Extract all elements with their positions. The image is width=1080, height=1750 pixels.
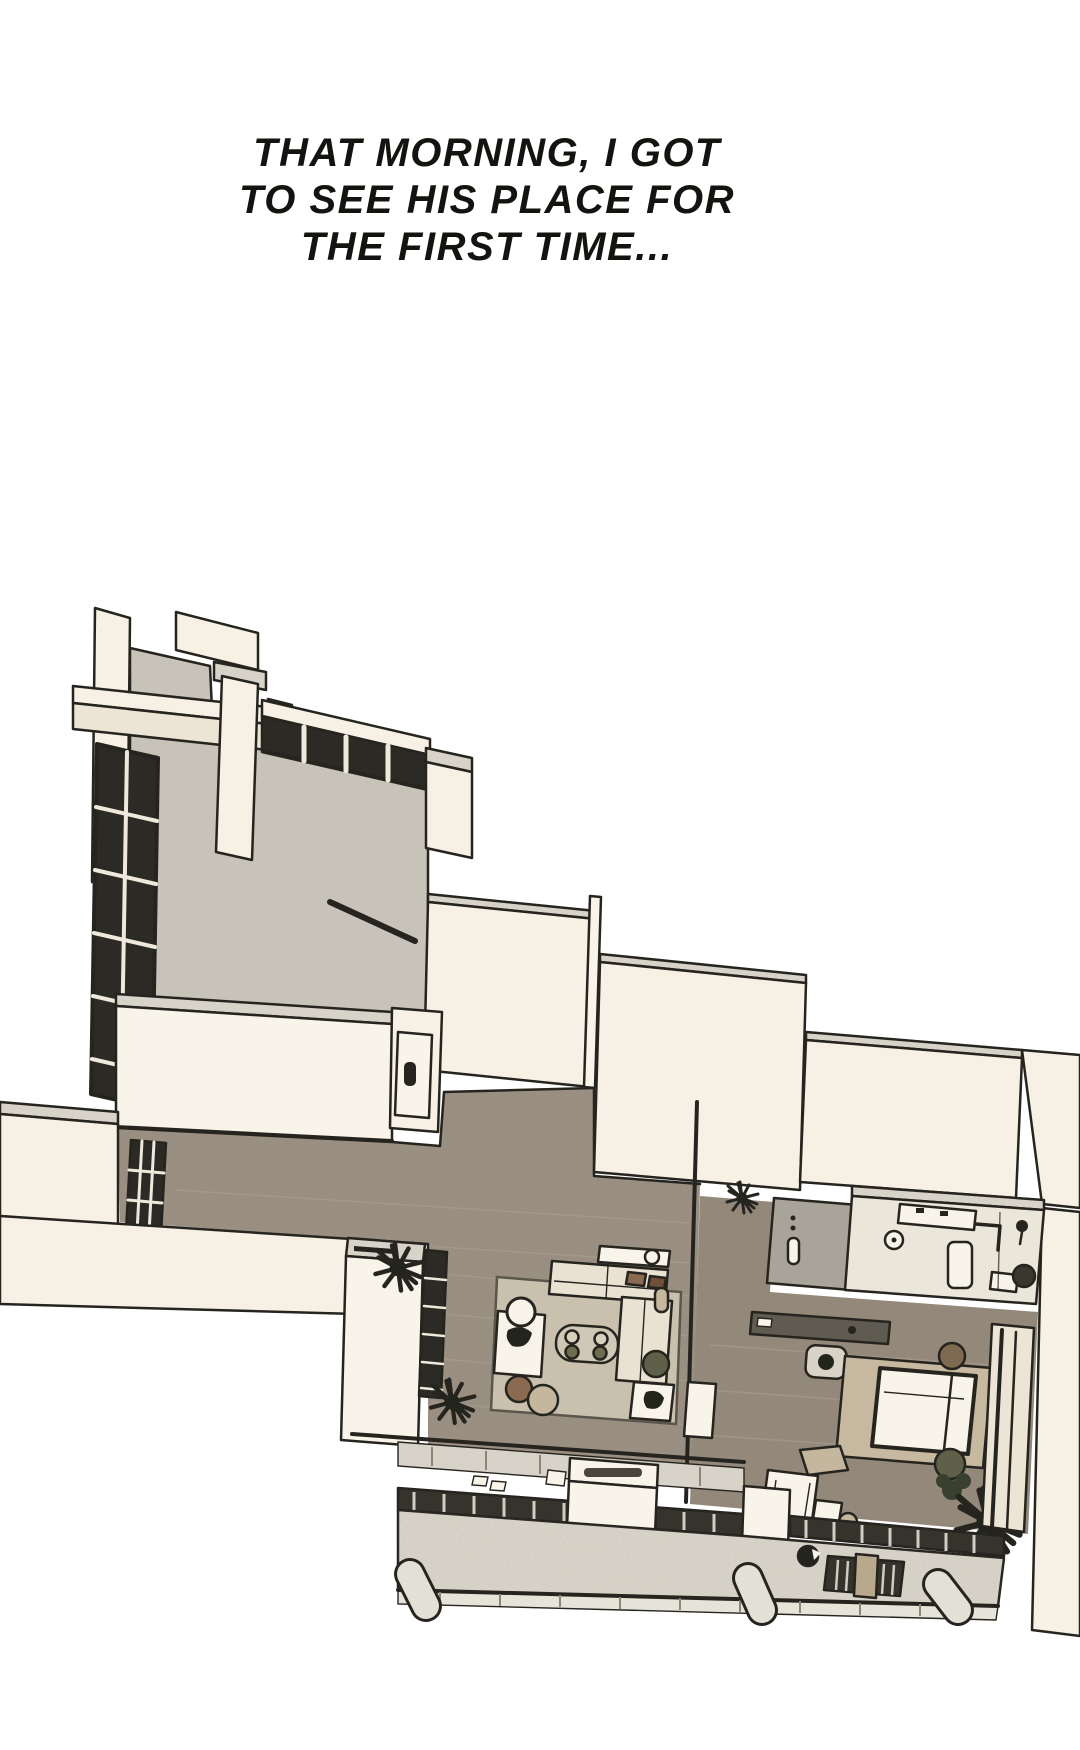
apartment-isometric-illustration: [0, 0, 1080, 1750]
pouf: [528, 1385, 558, 1415]
comic-page: THAT MORNING, I GOT TO SEE HIS PLACE FOR…: [0, 0, 1080, 1750]
desk-lamp-icon: [848, 1326, 856, 1334]
left-roof-a: [0, 1114, 118, 1226]
terrace-bench: [824, 1554, 904, 1598]
slippers: [490, 1481, 506, 1491]
sliding-door: [684, 1382, 716, 1438]
person-head: [507, 1298, 535, 1326]
bathroom: [845, 1186, 1044, 1304]
wall-step-1: [424, 902, 596, 1087]
bedside-stool: [939, 1343, 965, 1369]
bathroom-outer-wall: [767, 1198, 858, 1290]
kitchen-room-top: [116, 1006, 392, 1141]
bed: [872, 1368, 976, 1454]
shower-head-icon: [1016, 1220, 1028, 1232]
ac-vent: [584, 1468, 642, 1477]
pouf: [643, 1351, 669, 1377]
floor-cushion: [800, 1446, 848, 1475]
sofa-cushion: [626, 1272, 646, 1286]
kitchen-room: [116, 994, 392, 1141]
door-handle: [404, 1062, 416, 1086]
desk-paper: [757, 1318, 772, 1327]
side-shelf: [419, 1250, 447, 1398]
bath-mat: [948, 1242, 972, 1288]
living-side-window: [126, 1140, 166, 1234]
slippers: [472, 1476, 488, 1486]
throw-blanket: [655, 1288, 668, 1312]
console-bowl: [645, 1250, 659, 1264]
coffee-table: [555, 1324, 619, 1364]
wall-step-2: [594, 962, 806, 1190]
corner-cap-block: [426, 762, 472, 858]
wall-step-3: [800, 1040, 1022, 1198]
bathroom-door-handle: [788, 1238, 799, 1264]
right-edge-wall: [1022, 1050, 1080, 1208]
toilet: [1013, 1265, 1035, 1287]
white-pillar: [216, 676, 258, 860]
